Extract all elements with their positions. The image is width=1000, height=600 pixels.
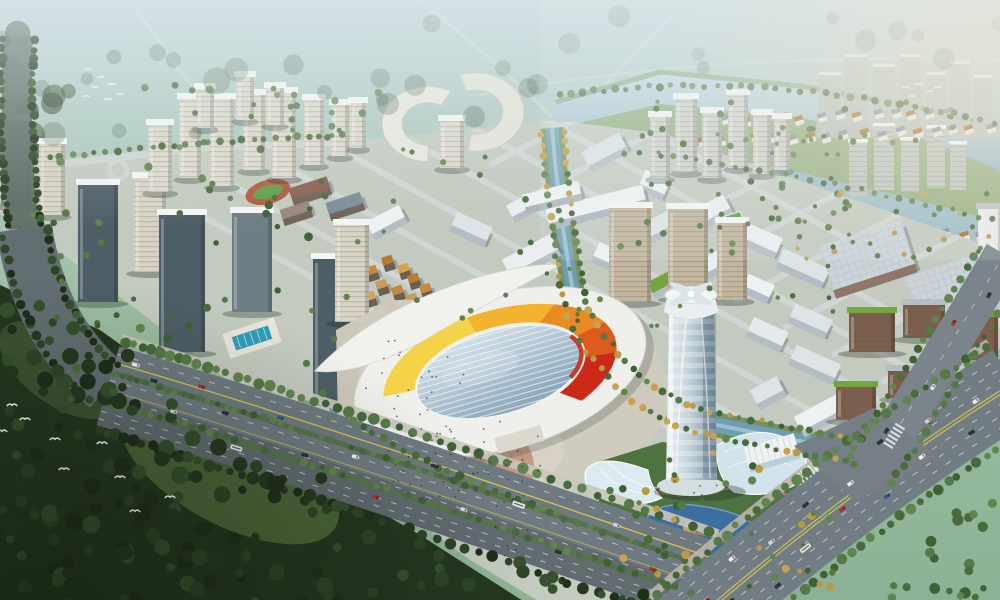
pedestrian-dot <box>489 462 491 464</box>
tree <box>355 239 361 245</box>
tree <box>599 365 605 371</box>
tower-highlight <box>905 309 908 335</box>
pedestrian-dot <box>499 421 501 423</box>
tree <box>672 583 679 590</box>
tree <box>783 448 790 455</box>
tree <box>690 403 696 409</box>
tree <box>909 356 917 364</box>
pedestrian-dot <box>383 358 385 360</box>
tree <box>742 439 749 446</box>
tree <box>982 343 990 351</box>
pedestrian-dot <box>459 382 461 384</box>
tree <box>683 565 690 572</box>
pedestrian-dot <box>729 490 731 492</box>
tree <box>687 590 694 597</box>
tree <box>653 505 660 512</box>
tree <box>930 377 938 385</box>
tree <box>661 543 668 550</box>
pedestrian-dot <box>488 473 490 475</box>
tree <box>503 293 508 298</box>
tree <box>619 485 627 493</box>
tree <box>980 585 986 591</box>
tree <box>667 457 672 462</box>
tree <box>498 493 505 500</box>
tree <box>933 485 944 496</box>
tree <box>856 541 865 550</box>
pedestrian-dot <box>463 374 465 376</box>
tree <box>797 569 802 574</box>
tree <box>562 301 568 307</box>
tree <box>7 270 15 278</box>
tree <box>594 492 602 500</box>
tree <box>637 589 649 600</box>
tree <box>885 393 891 399</box>
tree <box>827 295 832 300</box>
tree <box>727 413 732 418</box>
tree <box>662 581 671 590</box>
tree <box>710 433 717 440</box>
tree <box>761 498 770 507</box>
tree <box>704 526 715 537</box>
tree <box>681 550 690 559</box>
tree <box>747 584 752 589</box>
tree <box>636 372 642 378</box>
pedestrian-dot <box>511 461 513 463</box>
pedestrian-dot <box>381 372 383 374</box>
tree <box>826 583 834 591</box>
tree <box>644 379 650 385</box>
tower-roof <box>834 381 878 387</box>
tree <box>644 535 653 544</box>
pedestrian-dot <box>521 481 523 483</box>
tree <box>837 554 848 565</box>
tree <box>573 519 581 527</box>
tree <box>44 235 53 244</box>
tree <box>722 435 729 442</box>
tree <box>699 498 705 504</box>
tree <box>753 506 761 514</box>
tree <box>900 462 908 470</box>
tree <box>802 468 812 478</box>
tower-highlight <box>838 391 841 417</box>
tree <box>745 514 752 521</box>
tree <box>592 555 599 562</box>
pedestrian-dot <box>674 481 676 483</box>
tree <box>897 373 904 380</box>
tree <box>661 551 669 559</box>
tree <box>617 565 625 573</box>
tree <box>881 408 891 418</box>
tree <box>891 403 898 410</box>
tree <box>772 489 782 499</box>
tree <box>809 578 819 588</box>
tree <box>606 487 613 494</box>
pedestrian-dot <box>539 465 541 467</box>
tree <box>755 465 763 473</box>
pedestrian-dot <box>427 409 429 411</box>
pedestrian-dot <box>477 472 479 474</box>
tree <box>275 287 281 293</box>
tree <box>891 470 900 479</box>
pedestrian-dot <box>503 501 505 503</box>
tree <box>957 592 964 599</box>
tree <box>775 295 780 300</box>
tree <box>803 452 809 458</box>
tree <box>866 533 875 542</box>
tree <box>601 333 608 340</box>
tree <box>781 483 789 491</box>
tree <box>964 363 970 369</box>
pedestrian-dot <box>505 464 507 466</box>
tree <box>789 425 795 431</box>
tower-highlight <box>337 229 340 319</box>
pedestrian-dot <box>496 506 498 508</box>
pedestrian-dot <box>515 549 517 551</box>
tree <box>940 369 951 380</box>
tree <box>944 294 953 303</box>
tree <box>971 457 981 467</box>
pedestrian-dot <box>445 426 447 428</box>
tree <box>460 315 466 321</box>
tree <box>749 531 754 536</box>
tree <box>632 570 639 577</box>
tree <box>759 417 764 422</box>
tree <box>932 410 939 417</box>
tree <box>879 529 885 535</box>
tree <box>857 436 864 443</box>
tree <box>890 582 897 589</box>
tree <box>926 536 937 547</box>
tree <box>904 454 912 462</box>
tree <box>847 548 857 558</box>
tree <box>381 229 385 233</box>
pedestrian-dot <box>521 466 523 468</box>
tree <box>615 533 621 539</box>
tree <box>923 384 929 390</box>
tree <box>576 552 582 558</box>
tree <box>820 571 828 579</box>
tree <box>599 529 606 536</box>
tree <box>826 264 831 269</box>
tree <box>492 488 499 495</box>
crown-hub <box>688 291 694 297</box>
tower-windows <box>849 312 895 352</box>
pedestrian-dot <box>407 389 409 391</box>
tree <box>622 358 628 364</box>
pedestrian-dot <box>435 376 437 378</box>
tree <box>628 398 635 405</box>
tree <box>829 569 835 575</box>
tree <box>984 453 991 460</box>
tree <box>922 428 931 437</box>
tree <box>608 495 615 502</box>
tree <box>657 415 663 421</box>
pedestrian-dot <box>428 371 430 373</box>
tower-shade <box>891 312 895 352</box>
tree <box>894 510 904 520</box>
pedestrian-dot <box>716 484 718 486</box>
tree <box>581 289 589 297</box>
tree <box>462 446 470 454</box>
tree <box>779 424 784 429</box>
tree <box>806 427 813 434</box>
tree <box>583 349 589 355</box>
tree <box>673 572 680 579</box>
tree <box>722 531 733 542</box>
tree <box>619 554 627 562</box>
tree <box>517 463 528 474</box>
tree <box>587 524 593 530</box>
tree <box>951 381 959 389</box>
tree <box>733 439 739 445</box>
tree <box>812 510 817 515</box>
pedestrian-dot <box>693 492 695 494</box>
tree <box>575 318 580 323</box>
tree <box>645 575 650 580</box>
tree <box>83 252 90 259</box>
tree <box>914 345 922 353</box>
tree <box>553 509 560 516</box>
tree <box>925 326 934 335</box>
tree <box>344 294 350 300</box>
tree <box>782 565 790 573</box>
pedestrian-dot <box>685 496 687 498</box>
tree <box>641 506 650 515</box>
tree <box>774 447 779 452</box>
tree <box>748 476 756 484</box>
tree <box>532 469 541 478</box>
tree <box>964 566 973 575</box>
tree <box>556 281 564 289</box>
tower-roof <box>847 307 897 313</box>
tree <box>636 500 641 505</box>
tree <box>97 239 104 246</box>
tower-highlight <box>851 317 854 349</box>
pedestrian-dot <box>431 376 433 378</box>
pedestrian-dot <box>480 458 482 460</box>
tree <box>516 565 529 578</box>
tree <box>703 430 710 437</box>
tree <box>826 515 833 522</box>
tree <box>793 448 801 456</box>
tower-shade <box>365 224 369 322</box>
tree <box>890 383 896 389</box>
pedestrian-dot <box>701 494 703 496</box>
tree <box>672 472 678 478</box>
tree <box>713 537 722 546</box>
tree <box>556 262 561 267</box>
tree <box>677 501 685 509</box>
tree <box>582 298 589 305</box>
tree <box>567 267 571 271</box>
tree <box>838 433 843 438</box>
pedestrian-dot <box>521 459 523 461</box>
tree <box>538 537 544 543</box>
tree <box>57 253 64 260</box>
tree <box>768 421 774 427</box>
pedestrian-dot <box>527 529 529 531</box>
tree <box>902 365 909 372</box>
tree <box>534 569 542 577</box>
aerial-masterplan-rendering <box>0 0 1000 600</box>
tree <box>597 590 605 598</box>
tree <box>597 296 603 302</box>
tree <box>548 584 558 594</box>
tree <box>528 500 536 508</box>
pedestrian-dot <box>485 470 487 472</box>
tree <box>828 432 834 438</box>
pedestrian-dot <box>426 397 428 399</box>
tree <box>612 383 619 390</box>
tree <box>603 559 611 567</box>
tower-windows <box>335 224 369 322</box>
tree <box>771 573 779 581</box>
tree <box>847 453 854 460</box>
tree <box>770 554 776 560</box>
tree <box>563 481 572 490</box>
tree <box>847 436 853 442</box>
tree <box>965 465 972 472</box>
tree <box>671 517 677 523</box>
tree <box>589 313 595 319</box>
tree <box>988 499 997 508</box>
pedestrian-dot <box>478 450 480 452</box>
tree <box>505 491 512 498</box>
tree <box>975 343 980 348</box>
tree <box>911 390 919 398</box>
tree <box>873 410 881 418</box>
tree <box>503 459 511 467</box>
tree <box>629 537 634 542</box>
tree <box>952 508 962 518</box>
tree <box>474 448 484 458</box>
tree <box>717 410 723 416</box>
tree <box>707 285 713 291</box>
tree <box>488 455 499 466</box>
tree <box>563 547 571 555</box>
tree <box>213 240 219 246</box>
tree <box>222 297 228 303</box>
tree <box>831 309 836 314</box>
tower-roof <box>901 299 947 305</box>
tree <box>722 480 729 487</box>
tree <box>926 491 933 498</box>
tree <box>798 521 805 528</box>
pedestrian-dot <box>512 498 514 500</box>
tree <box>651 384 659 392</box>
tree <box>944 391 951 398</box>
tree <box>704 549 711 556</box>
tree <box>331 335 338 342</box>
tree <box>791 474 802 485</box>
tree <box>579 278 586 285</box>
tree <box>669 392 674 397</box>
tree <box>912 447 919 454</box>
tree <box>732 522 739 529</box>
tree <box>955 372 963 380</box>
pedestrian-dot <box>517 451 519 453</box>
tree <box>678 304 683 309</box>
tree <box>880 402 886 408</box>
tree <box>800 584 811 595</box>
tree <box>624 499 634 509</box>
tree <box>648 409 654 415</box>
tree <box>931 316 938 323</box>
tree <box>929 583 940 594</box>
tree <box>752 442 758 448</box>
pedestrian-dot <box>507 479 509 481</box>
tree <box>953 365 959 371</box>
tree <box>992 446 999 453</box>
tree <box>989 324 995 330</box>
tree <box>539 505 546 512</box>
tree <box>822 456 828 462</box>
pedestrian-dot <box>450 431 452 433</box>
tree <box>903 396 912 405</box>
tree <box>563 312 571 320</box>
tree <box>546 475 555 484</box>
tree <box>569 325 576 332</box>
tree <box>309 308 314 313</box>
tree <box>1 245 10 254</box>
pedestrian-dot <box>447 356 449 358</box>
tree <box>917 498 924 505</box>
tree <box>551 542 558 549</box>
tree <box>642 487 650 495</box>
tree <box>559 291 565 297</box>
tree <box>790 594 796 600</box>
tree <box>850 445 857 452</box>
tree <box>842 457 849 464</box>
pedestrian-dot <box>523 495 525 497</box>
tree <box>850 461 857 468</box>
scene-canvas <box>0 0 1000 600</box>
pedestrian-dot <box>483 441 485 443</box>
tree <box>577 583 589 595</box>
tower-highlight <box>234 217 237 309</box>
pedestrian-dot <box>388 341 390 343</box>
tree <box>631 366 638 373</box>
pedestrian-dot <box>398 354 400 356</box>
tree <box>590 356 596 362</box>
tree <box>47 247 54 254</box>
tree <box>708 410 713 415</box>
tree <box>48 256 57 265</box>
tree <box>556 274 561 279</box>
tree <box>736 415 741 420</box>
pedestrian-dot <box>520 501 522 503</box>
tree <box>614 351 621 358</box>
tree <box>790 293 796 299</box>
tree <box>577 260 583 266</box>
tree <box>817 581 824 588</box>
tree <box>969 510 977 518</box>
tree <box>468 308 474 314</box>
pedestrian-dot <box>483 428 485 430</box>
tree <box>652 590 661 599</box>
tree <box>664 419 670 425</box>
tree <box>621 389 628 396</box>
tree <box>517 249 523 255</box>
tree <box>51 266 60 275</box>
tree <box>968 352 976 360</box>
tree <box>903 583 911 591</box>
tree <box>575 312 579 316</box>
tree <box>5 256 14 265</box>
tree <box>747 417 755 425</box>
pedestrian-dot <box>658 487 660 489</box>
tree <box>525 535 532 542</box>
